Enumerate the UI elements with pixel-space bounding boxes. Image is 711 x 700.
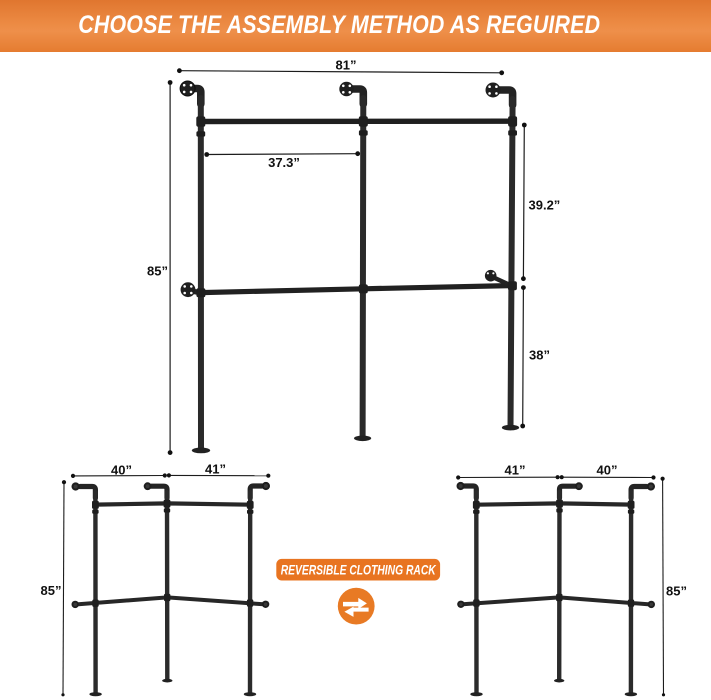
svg-text:39.2”: 39.2” <box>529 198 561 213</box>
svg-text:38”: 38” <box>529 348 550 363</box>
svg-text:41”: 41” <box>205 462 226 477</box>
svg-text:40”: 40” <box>597 463 618 478</box>
svg-text:41”: 41” <box>505 463 526 478</box>
svg-text:85”: 85” <box>147 264 168 279</box>
svg-text:85”: 85” <box>41 583 62 598</box>
svg-text:81”: 81” <box>336 58 357 73</box>
svg-text:REVERSIBLE CLOTHING RACK: REVERSIBLE CLOTHING RACK <box>281 563 437 578</box>
svg-text:40”: 40” <box>111 462 132 477</box>
svg-text:85”: 85” <box>666 584 687 599</box>
svg-text:37.3”: 37.3” <box>268 155 300 170</box>
